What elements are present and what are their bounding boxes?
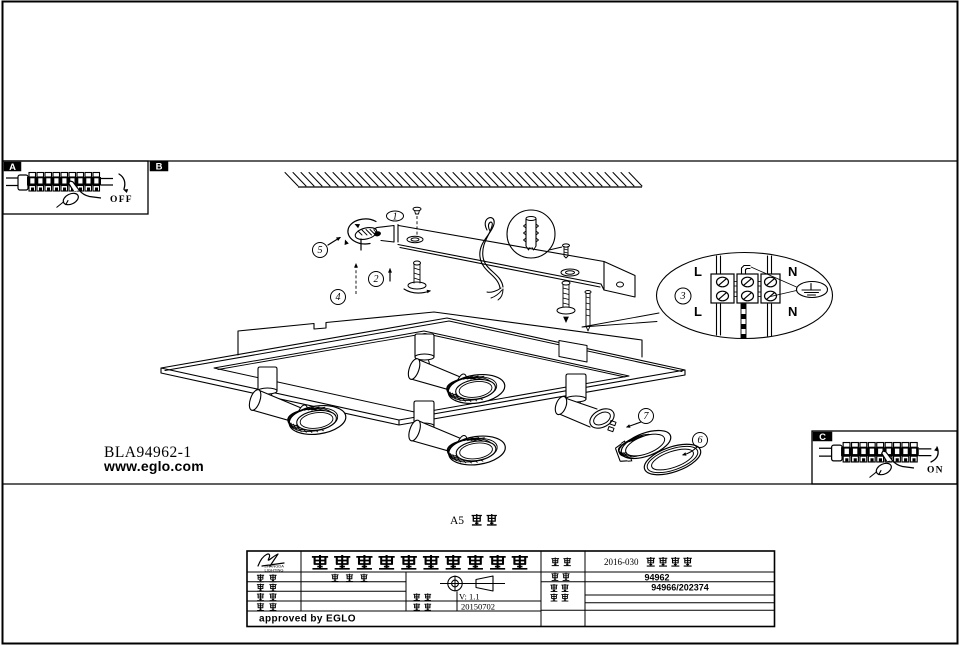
svg-text:3: 3 [680, 291, 686, 302]
svg-text:2: 2 [374, 274, 379, 285]
svg-text:6: 6 [698, 435, 703, 446]
svg-text:20150702: 20150702 [461, 601, 495, 611]
svg-text:A5: A5 [450, 515, 464, 527]
svg-text:N: N [788, 304, 797, 319]
svg-text:L: L [694, 264, 702, 279]
svg-text:A: A [9, 162, 16, 173]
svg-text:ON: ON [927, 466, 944, 476]
svg-text:4: 4 [336, 292, 341, 303]
svg-text:1: 1 [393, 212, 398, 223]
svg-text:www.eglo.com: www.eglo.com [103, 458, 204, 474]
svg-text:94962: 94962 [644, 573, 669, 583]
svg-text:L: L [694, 304, 702, 319]
svg-text:C: C [819, 432, 826, 443]
svg-text:B: B [156, 162, 163, 173]
svg-text:2016-030: 2016-030 [604, 557, 639, 567]
svg-text:OFF: OFF [110, 195, 133, 205]
svg-text:N: N [788, 264, 797, 279]
svg-text:approved by EGLO: approved by EGLO [259, 614, 356, 625]
svg-text:LIGHTING: LIGHTING [265, 568, 284, 573]
svg-text:V: 1.1: V: 1.1 [459, 592, 480, 602]
svg-text:5: 5 [318, 245, 323, 256]
svg-text:94966/202374: 94966/202374 [651, 583, 709, 593]
